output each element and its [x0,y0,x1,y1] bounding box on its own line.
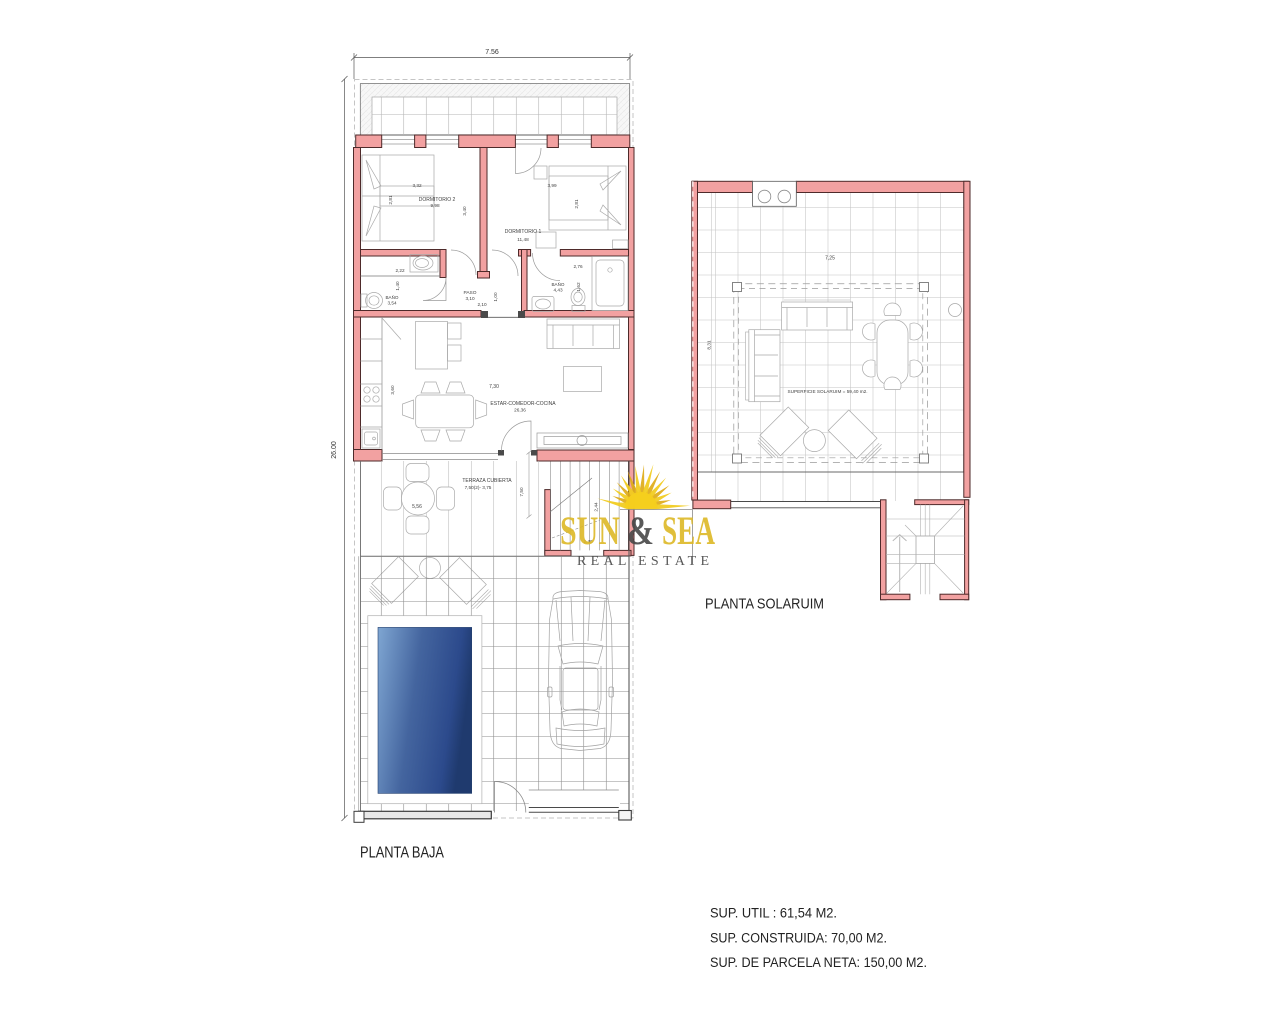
svg-text:5,56: 5,56 [412,504,422,510]
svg-text:2,22: 2,22 [395,268,405,273]
svg-text:7,50(2)- 3,75: 7,50(2)- 3,75 [465,485,492,490]
svg-text:3,10: 3,10 [465,296,475,301]
svg-text:2,76: 2,76 [573,264,583,269]
svg-text:3,99: 3,99 [547,183,557,188]
svg-text:3,54: 3,54 [387,301,397,306]
svg-text:REAL ESTATE: REAL ESTATE [577,554,709,569]
svg-text:&: & [627,508,654,553]
svg-text:1,62: 1,62 [576,282,581,292]
svg-text:1,00: 1,00 [493,292,498,302]
svg-text:DORMITORIO 1: DORMITORIO 1 [505,229,542,235]
svg-text:4,43: 4,43 [553,288,563,293]
svg-text:PLANTA BAJA: PLANTA BAJA [360,845,444,862]
svg-text:1,40: 1,40 [395,281,400,291]
svg-text:7.56: 7.56 [485,49,499,56]
svg-text:11,48: 11,48 [517,237,529,242]
svg-text:SUP. DE PARCELA NETA: 150,00 M: SUP. DE PARCELA NETA: 150,00 M2. [710,955,927,971]
svg-text:2,81: 2,81 [574,199,579,209]
svg-text:SUP. UTIL : 61,54 M2.: SUP. UTIL : 61,54 M2. [710,906,837,922]
svg-text:PLANTA SOLARUIM: PLANTA SOLARUIM [705,596,824,613]
svg-text:3,40: 3,40 [462,206,467,216]
svg-text:SUP. CONSTRUIDA: 70,00 M2.: SUP. CONSTRUIDA: 70,00 M2. [710,931,887,947]
svg-text:7,30: 7,30 [489,384,499,390]
svg-text:BAÑO: BAÑO [551,281,564,287]
svg-text:9,98: 9,98 [430,203,440,208]
svg-text:ESTAR-COMEDOR-COCINA: ESTAR-COMEDOR-COCINA [490,401,556,407]
svg-text:3,32: 3,32 [412,183,422,188]
svg-text:BAÑO: BAÑO [385,294,398,300]
svg-text:2,81: 2,81 [388,195,393,205]
svg-text:7,25: 7,25 [825,256,835,262]
svg-text:2,10: 2,10 [477,302,487,307]
svg-text:TERRAZA CUBIERTA: TERRAZA CUBIERTA [462,478,512,484]
svg-text:26,36: 26,36 [514,408,526,413]
svg-text:SUPERFICIE SOLARUIM = 59,40 m2: SUPERFICIE SOLARUIM = 59,40 m2. [787,389,867,394]
svg-text:3,60: 3,60 [390,385,395,395]
svg-text:SEA: SEA [662,508,715,553]
svg-text:8,31: 8,31 [707,340,712,350]
svg-text:26.00: 26.00 [331,441,338,459]
svg-text:SUN: SUN [560,508,620,553]
svg-text:7,50: 7,50 [519,487,524,497]
